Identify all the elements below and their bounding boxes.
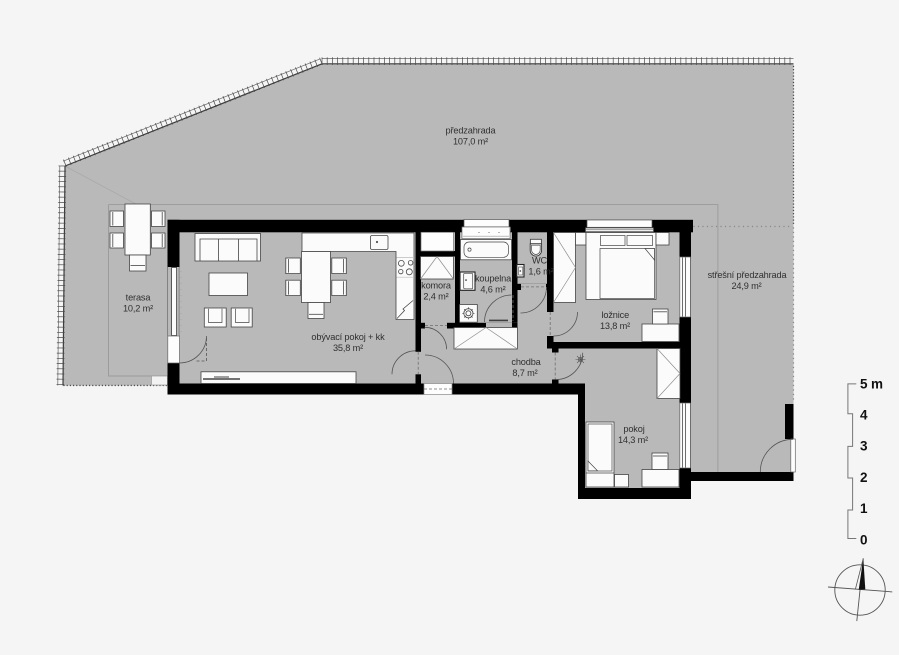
- svg-text:2,4 m²: 2,4 m²: [423, 292, 448, 302]
- svg-text:5 m: 5 m: [860, 377, 883, 392]
- svg-text:4,6 m²: 4,6 m²: [480, 285, 505, 295]
- svg-text:1: 1: [860, 501, 868, 516]
- svg-text:24,9 m²: 24,9 m²: [731, 281, 761, 291]
- svg-text:8,7 m²: 8,7 m²: [512, 368, 537, 378]
- svg-text:107,0 m²: 107,0 m²: [453, 137, 488, 147]
- svg-text:4: 4: [860, 408, 868, 423]
- svg-text:chodba: chodba: [511, 357, 541, 367]
- svg-text:předzahrada: předzahrada: [446, 126, 497, 136]
- svg-text:0: 0: [860, 533, 867, 548]
- svg-text:ložnice: ložnice: [602, 310, 630, 320]
- svg-text:koupelna: koupelna: [475, 274, 512, 284]
- svg-text:2: 2: [860, 470, 867, 485]
- svg-text:1,6 m²: 1,6 m²: [528, 266, 553, 276]
- svg-text:obývací pokoj + kk: obývací pokoj + kk: [311, 332, 385, 342]
- svg-text:10,2 m²: 10,2 m²: [123, 304, 153, 314]
- svg-text:WC: WC: [532, 256, 548, 266]
- svg-text:35,8 m²: 35,8 m²: [333, 343, 363, 353]
- svg-text:terasa: terasa: [126, 293, 152, 303]
- svg-text:13,8 m²: 13,8 m²: [600, 321, 630, 331]
- svg-text:3: 3: [860, 439, 868, 454]
- svg-text:14,3 m²: 14,3 m²: [618, 435, 648, 445]
- svg-text:komora: komora: [421, 281, 452, 291]
- svg-text:pokoj: pokoj: [623, 424, 644, 434]
- svg-text:střešní předzahrada: střešní předzahrada: [708, 270, 788, 280]
